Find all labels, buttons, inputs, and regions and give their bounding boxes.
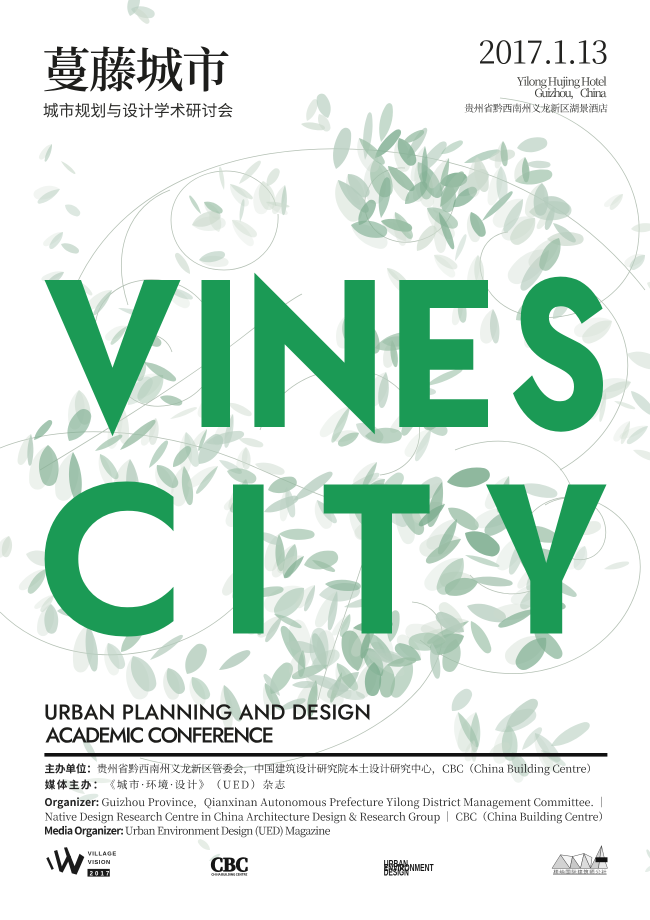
svg-text:VILLAGE: VILLAGE <box>88 852 117 858</box>
svg-text:2017: 2017 <box>90 871 112 877</box>
svg-text:VISION: VISION <box>88 860 111 866</box>
svg-text:DESIGN: DESIGN <box>384 867 409 878</box>
